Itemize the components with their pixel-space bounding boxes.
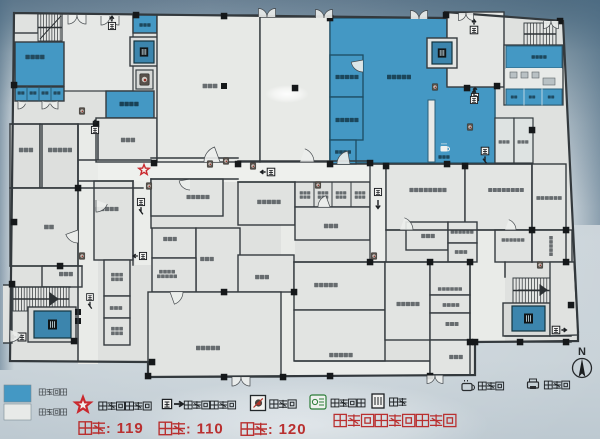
svg-text:: 119: : 119 xyxy=(106,420,144,437)
svg-text:: 120: : 120 xyxy=(268,421,307,438)
svg-text:N: N xyxy=(578,346,586,358)
svg-text:: 110: : 110 xyxy=(186,421,224,438)
